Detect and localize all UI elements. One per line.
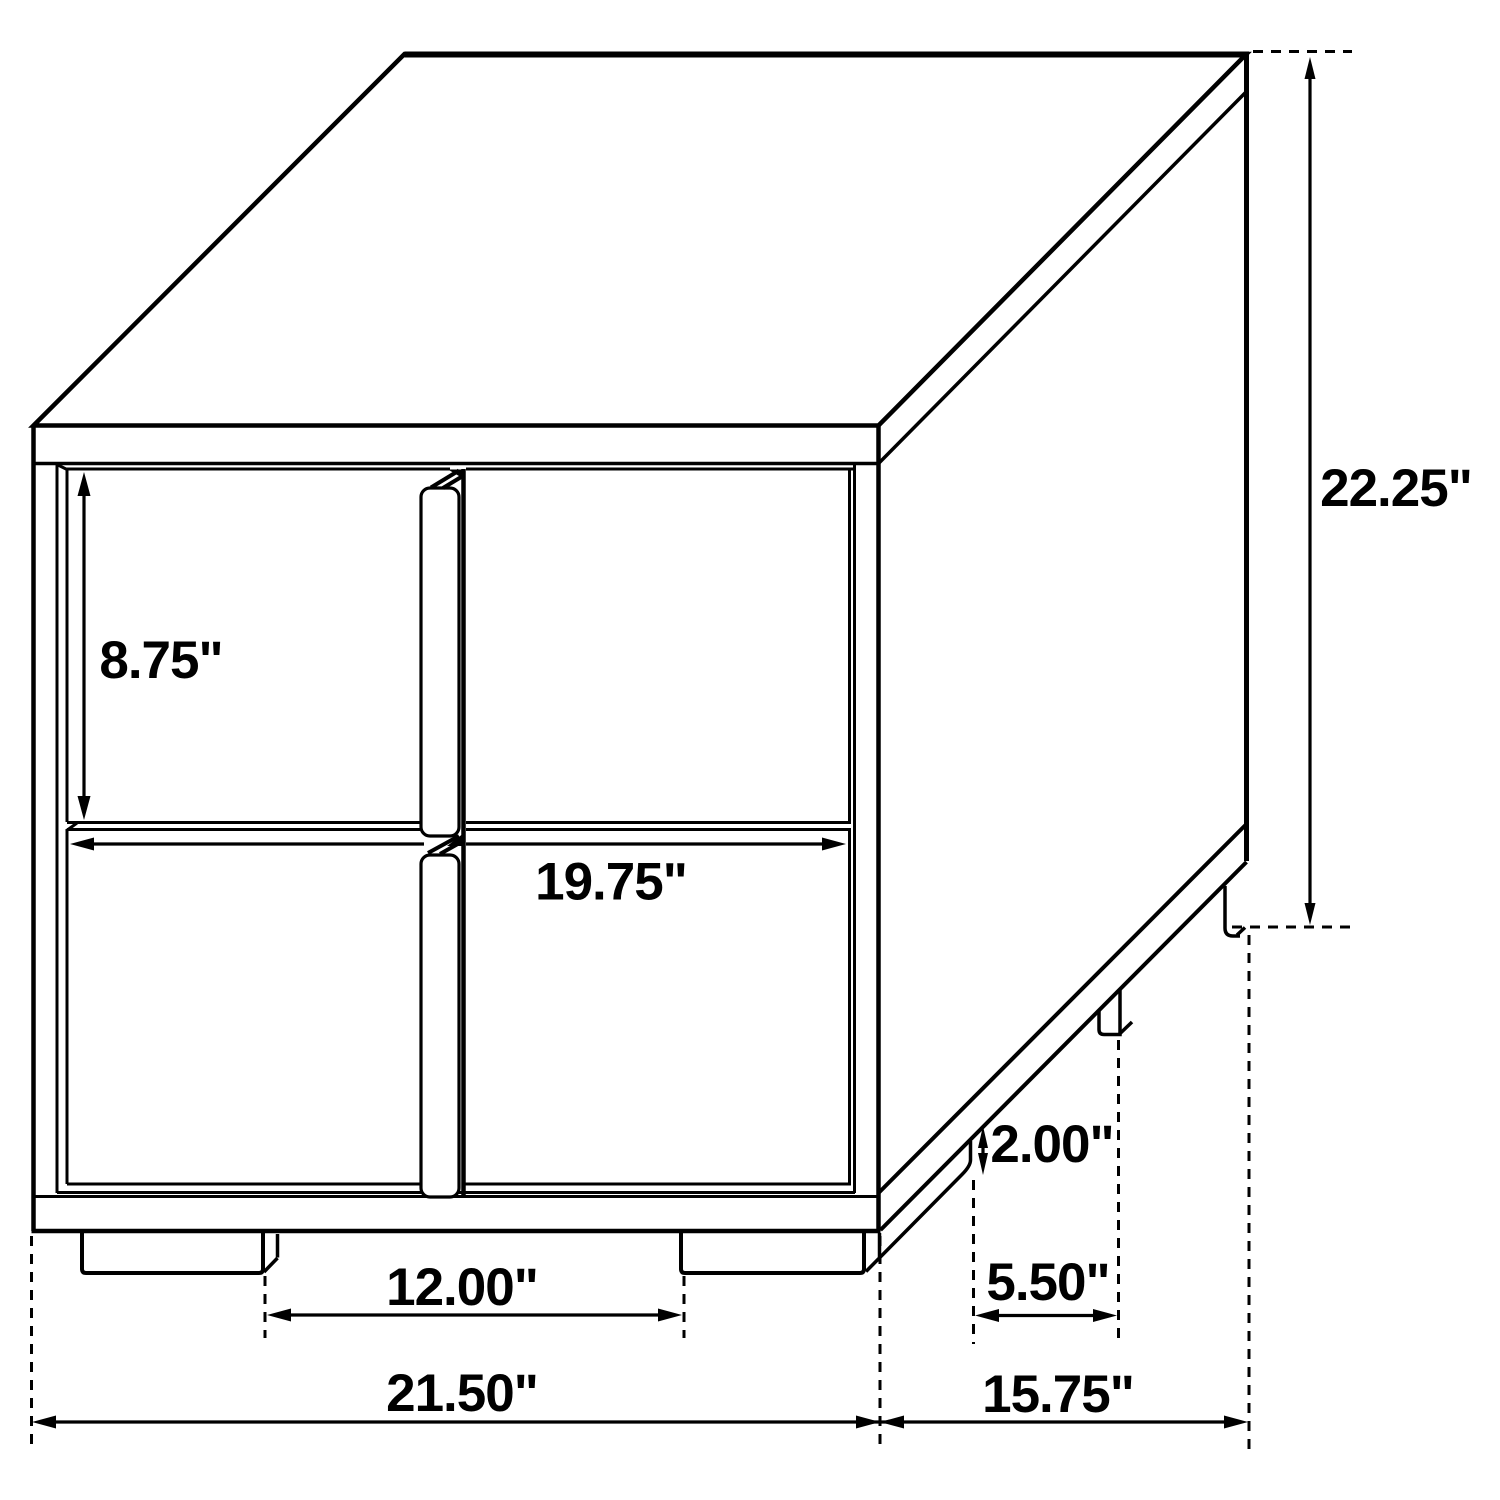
svg-text:8.75": 8.75" — [99, 631, 222, 690]
svg-text:5.50": 5.50" — [986, 1253, 1109, 1312]
svg-text:21.50": 21.50" — [386, 1364, 538, 1423]
svg-text:22.25": 22.25" — [1320, 459, 1472, 518]
svg-text:15.75": 15.75" — [982, 1365, 1134, 1424]
svg-text:2.00": 2.00" — [990, 1115, 1113, 1174]
svg-text:12.00": 12.00" — [386, 1258, 538, 1317]
svg-text:19.75": 19.75" — [535, 853, 687, 912]
